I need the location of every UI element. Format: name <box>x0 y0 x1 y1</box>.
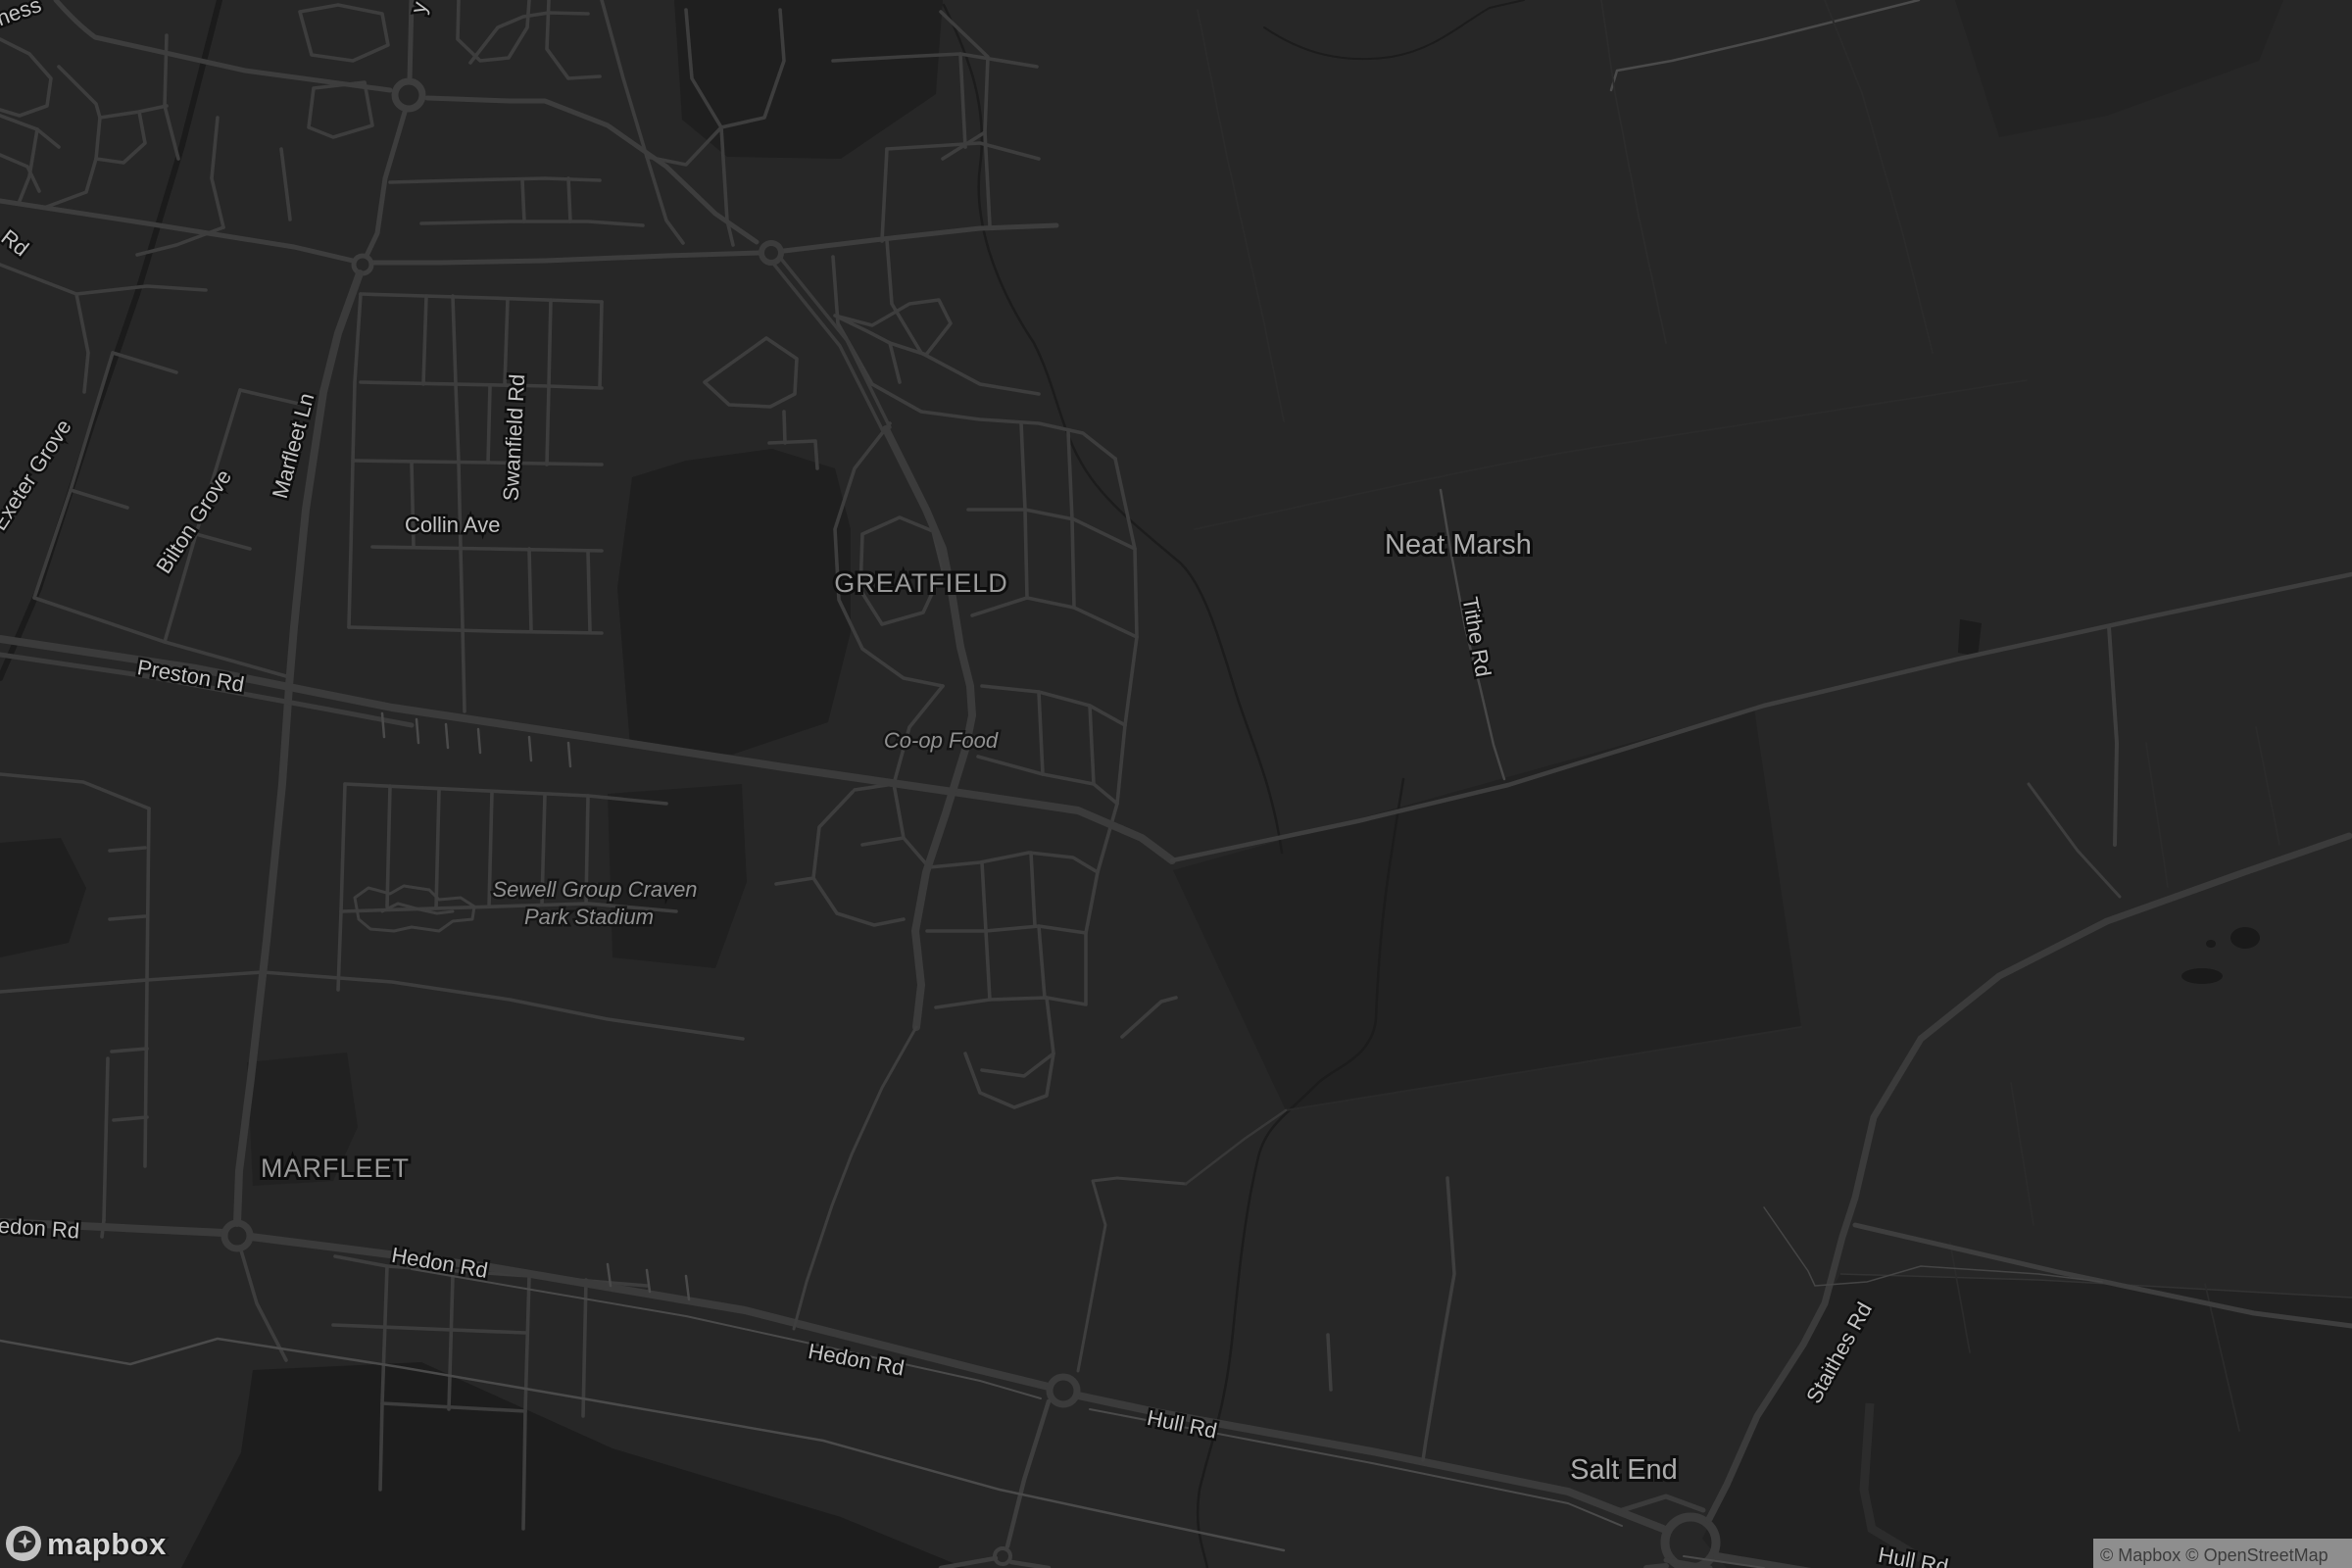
svg-text:Park Stadium: Park Stadium <box>524 905 654 929</box>
svg-text:Neat Marsh: Neat Marsh <box>1385 529 1532 561</box>
svg-text:Sewell Group Craven: Sewell Group Craven <box>492 877 697 902</box>
svg-text:© Mapbox © OpenStreetMap: © Mapbox © OpenStreetMap <box>2100 1545 2328 1565</box>
svg-text:Co-op Food: Co-op Food <box>884 728 999 753</box>
svg-text:mapbox: mapbox <box>47 1527 167 1561</box>
svg-text:Salt End: Salt End <box>1570 1454 1678 1486</box>
svg-text:MARFLEET: MARFLEET <box>261 1153 410 1183</box>
svg-text:Collin Ave: Collin Ave <box>405 513 500 537</box>
svg-text:GREATFIELD: GREATFIELD <box>834 568 1008 598</box>
